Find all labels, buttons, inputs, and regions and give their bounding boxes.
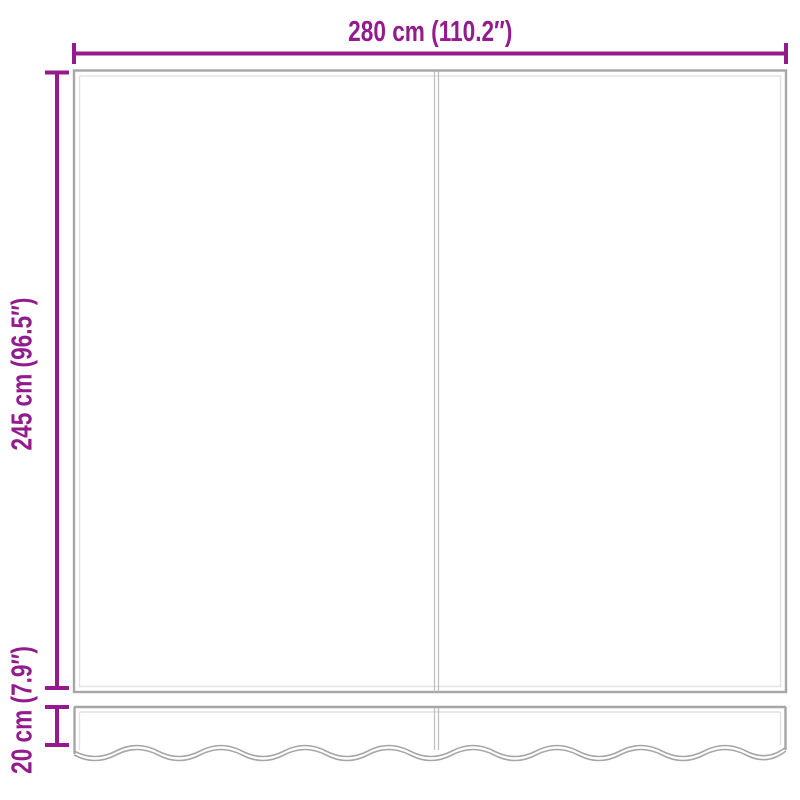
width-dimension-label-text: 280 cm (110.2″) bbox=[348, 18, 512, 47]
awning-fabric-panel bbox=[74, 71, 786, 693]
height-dimension-label: 245 cm (96.5″) bbox=[9, 298, 38, 451]
valance-strip bbox=[74, 707, 786, 761]
height-dimension bbox=[45, 73, 69, 689]
valance-height-dimension-label: 20 cm (7.9″) bbox=[9, 646, 38, 774]
wavy-hem-inner-line bbox=[74, 750, 786, 761]
width-dimension-label: 280 cm (110.2″) bbox=[74, 18, 786, 47]
valance-height-dimension bbox=[45, 707, 69, 745]
dimension-diagram: 280 cm (110.2″) 245 cm (96.5″) 20 cm (7.… bbox=[0, 0, 800, 800]
wavy-hem-outer-line bbox=[74, 746, 786, 757]
fabric-panel-outline bbox=[74, 71, 786, 693]
fabric-panel-inner-hem-line bbox=[80, 76, 781, 687]
diagram-canvas bbox=[0, 0, 800, 800]
